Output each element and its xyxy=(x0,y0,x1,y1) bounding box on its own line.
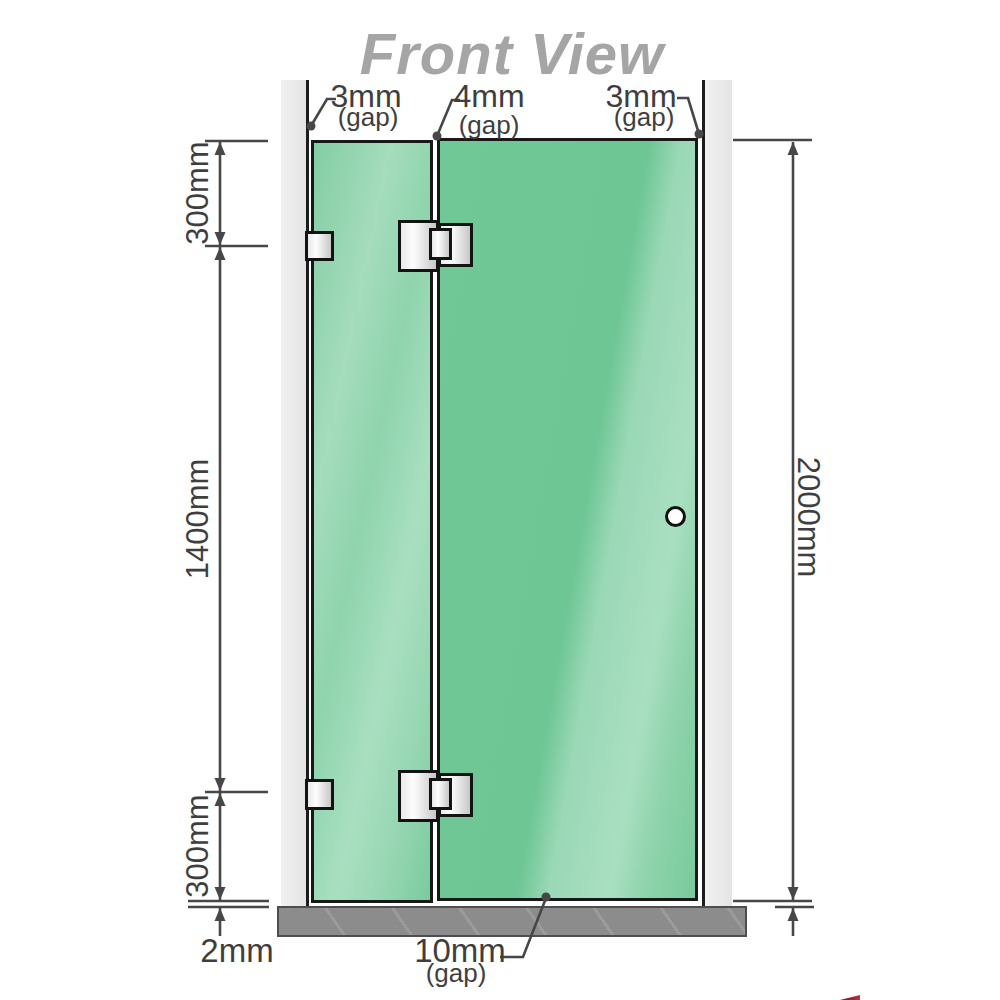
hinge-top-knuckle xyxy=(429,228,452,260)
floor-base xyxy=(277,906,747,937)
gap-label-top-middle-unit: (gap) xyxy=(459,110,520,141)
front-view-diagram: Front View xyxy=(0,0,1000,1000)
dimension-floor-clearance: 2mm xyxy=(200,932,273,970)
gap-label-top-right-unit: (gap) xyxy=(614,102,675,133)
right-wall xyxy=(702,80,732,907)
gap-label-top-left-unit: (gap) xyxy=(338,102,399,133)
wall-bracket-bottom xyxy=(305,779,334,810)
watermark-logo-fragment xyxy=(840,995,860,1000)
hinge-bottom-knuckle xyxy=(429,778,452,810)
dimension-right-total: 2000mm xyxy=(790,457,826,578)
door-knob xyxy=(665,506,686,527)
dimension-left-middle: 1400mm xyxy=(180,459,216,580)
gap-label-bottom-unit: (gap) xyxy=(426,958,487,989)
door-glass-panel xyxy=(437,138,698,901)
dimension-left-top: 300mm xyxy=(180,141,216,244)
dimension-left-bottom: 300mm xyxy=(180,794,216,897)
wall-bracket-top xyxy=(305,231,334,261)
